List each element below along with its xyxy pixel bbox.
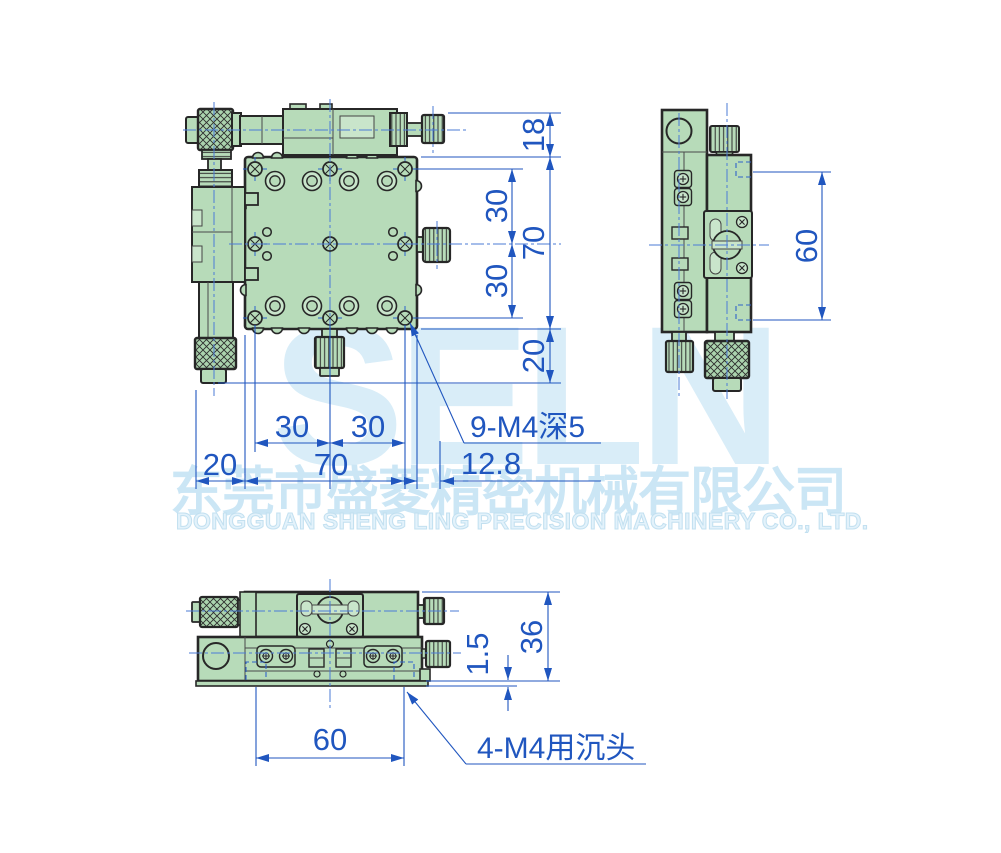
dim-30-bottom-right: 30 [351, 409, 385, 444]
dim-12-8: 12.8 [461, 446, 521, 481]
technical-drawing: 18 30 70 30 20 30 30 20 70 12.8 9-M4深5 6… [0, 0, 1001, 853]
dim-1-5: 1.5 [460, 632, 495, 675]
dim-18: 18 [516, 118, 551, 152]
note-9-m4-depth-5: 9-M4深5 [470, 411, 585, 444]
side-bottom-knobs [666, 332, 749, 391]
side-view [662, 110, 752, 391]
plan-right-knob [417, 228, 450, 262]
dim-30-right-lower: 30 [479, 264, 514, 298]
dim-36: 36 [514, 620, 549, 654]
dim-60-front: 60 [313, 722, 347, 757]
front-upper-stage [192, 592, 444, 637]
dim-70-bottom: 70 [314, 447, 348, 482]
dim-20-bottom: 20 [203, 447, 237, 482]
dim-30-right-upper: 30 [479, 189, 514, 223]
dim-70-right: 70 [516, 226, 551, 260]
front-lower-stage [196, 637, 450, 686]
note-4-m4-counterbore: 4-M4用沉头 [477, 732, 635, 765]
dim-60-side: 60 [789, 229, 824, 263]
dim-20-right: 20 [516, 339, 551, 373]
drawing-sheet: SELN 东莞市盛菱精密机械有限公司 DONGGUAN SHENG LING P… [0, 0, 1001, 853]
dim-30-bottom-left: 30 [275, 409, 309, 444]
front-view [192, 592, 450, 686]
